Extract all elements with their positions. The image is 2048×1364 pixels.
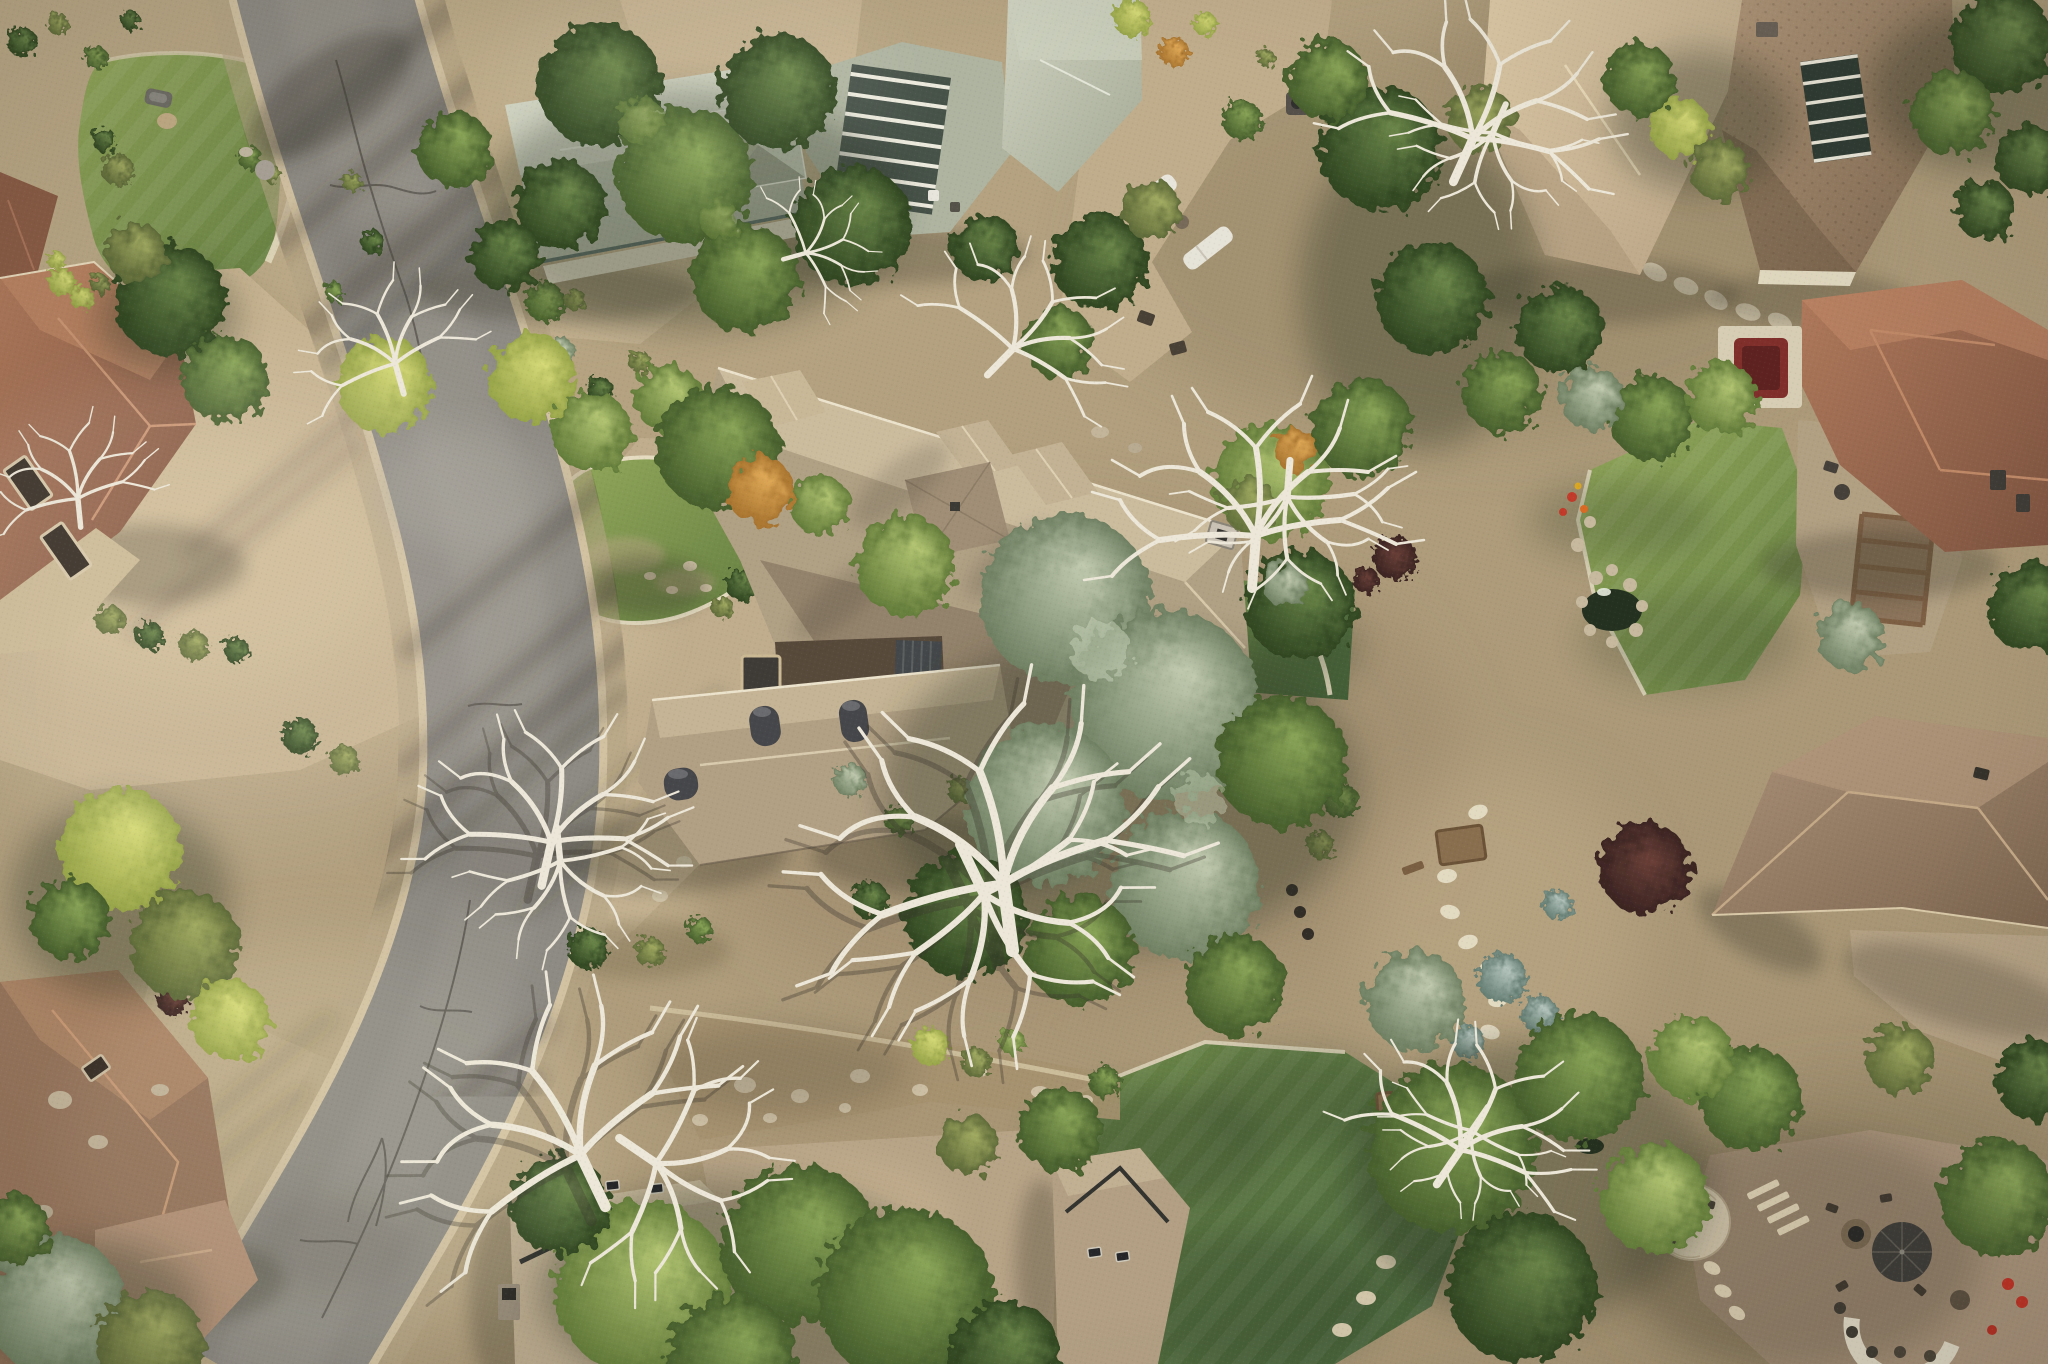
aerial-photo-canvas: [0, 0, 2048, 1364]
vignette: [0, 0, 2048, 1364]
aerial-photo: [0, 0, 2048, 1364]
